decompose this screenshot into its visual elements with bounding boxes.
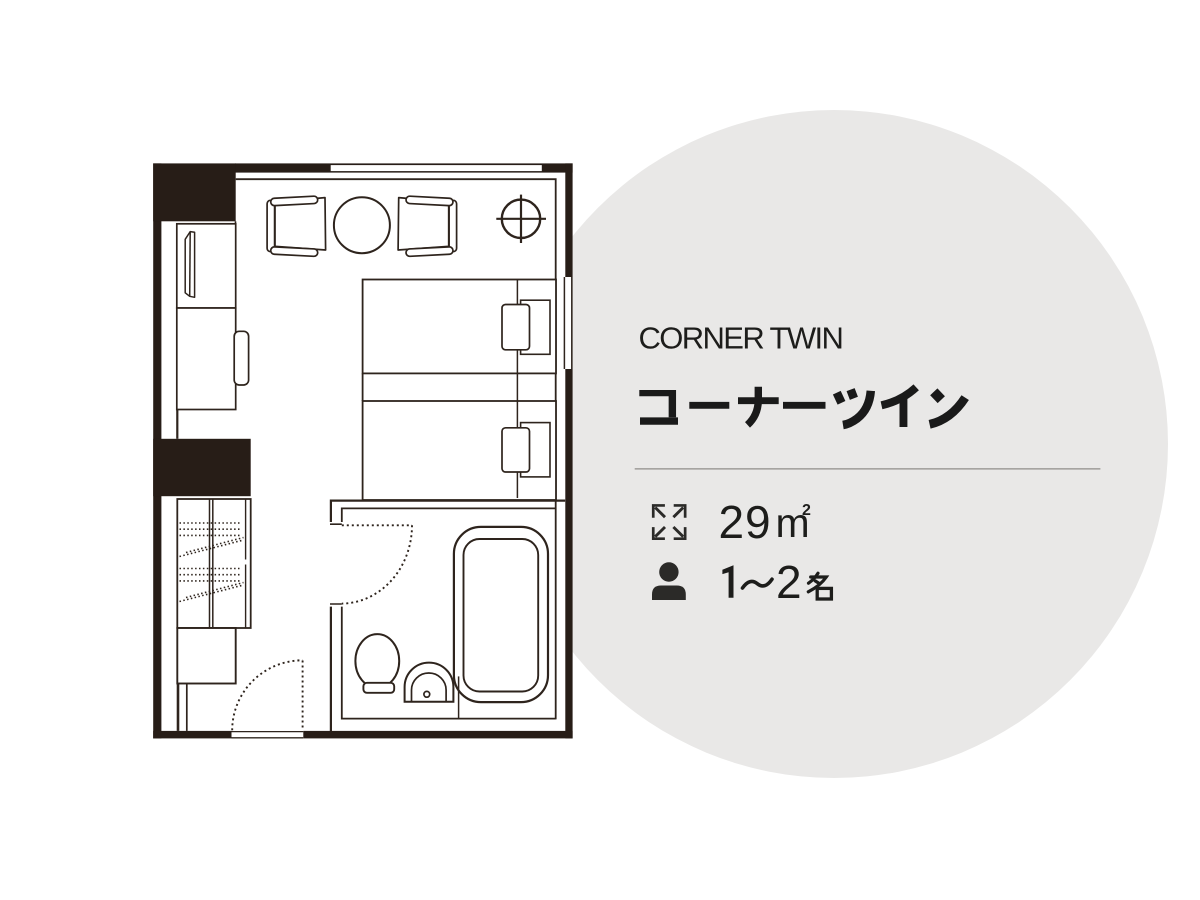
svg-text:2: 2 [776,556,802,608]
svg-text:2: 2 [802,502,811,519]
svg-text:29: 29 [719,496,772,548]
svg-text:CORNER TWIN: CORNER TWIN [639,321,843,356]
